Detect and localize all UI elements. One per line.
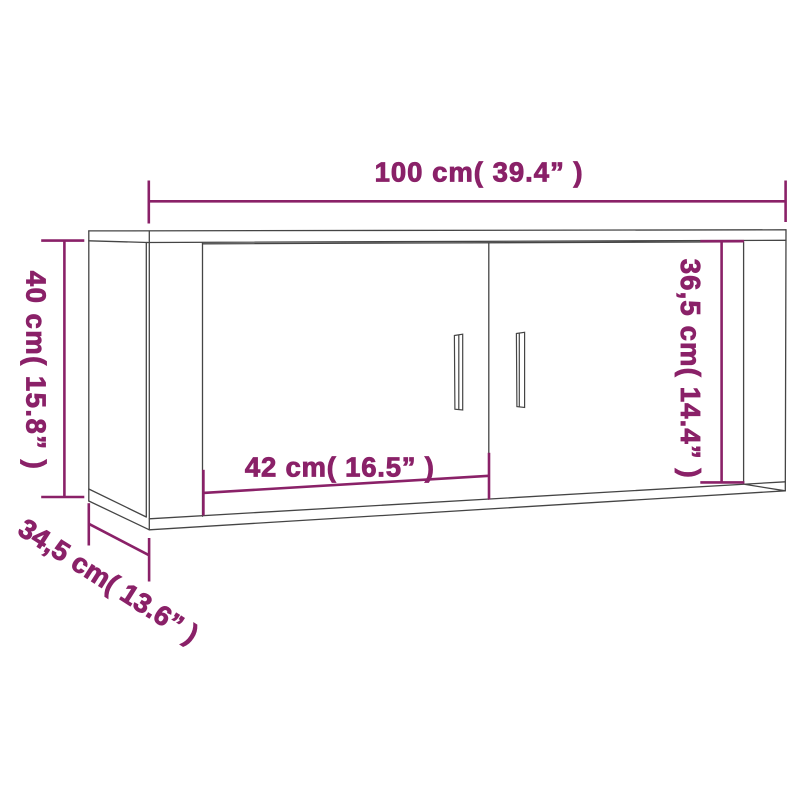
svg-text:40 cm( 15.8” ): 40 cm( 15.8” ) — [21, 271, 52, 469]
svg-text:100 cm( 39.4” ): 100 cm( 39.4” ) — [375, 157, 583, 188]
svg-text:42 cm( 16.5” ): 42 cm( 16.5” ) — [245, 451, 434, 482]
svg-text:36,5 cm( 14.4” ): 36,5 cm( 14.4” ) — [675, 259, 706, 478]
